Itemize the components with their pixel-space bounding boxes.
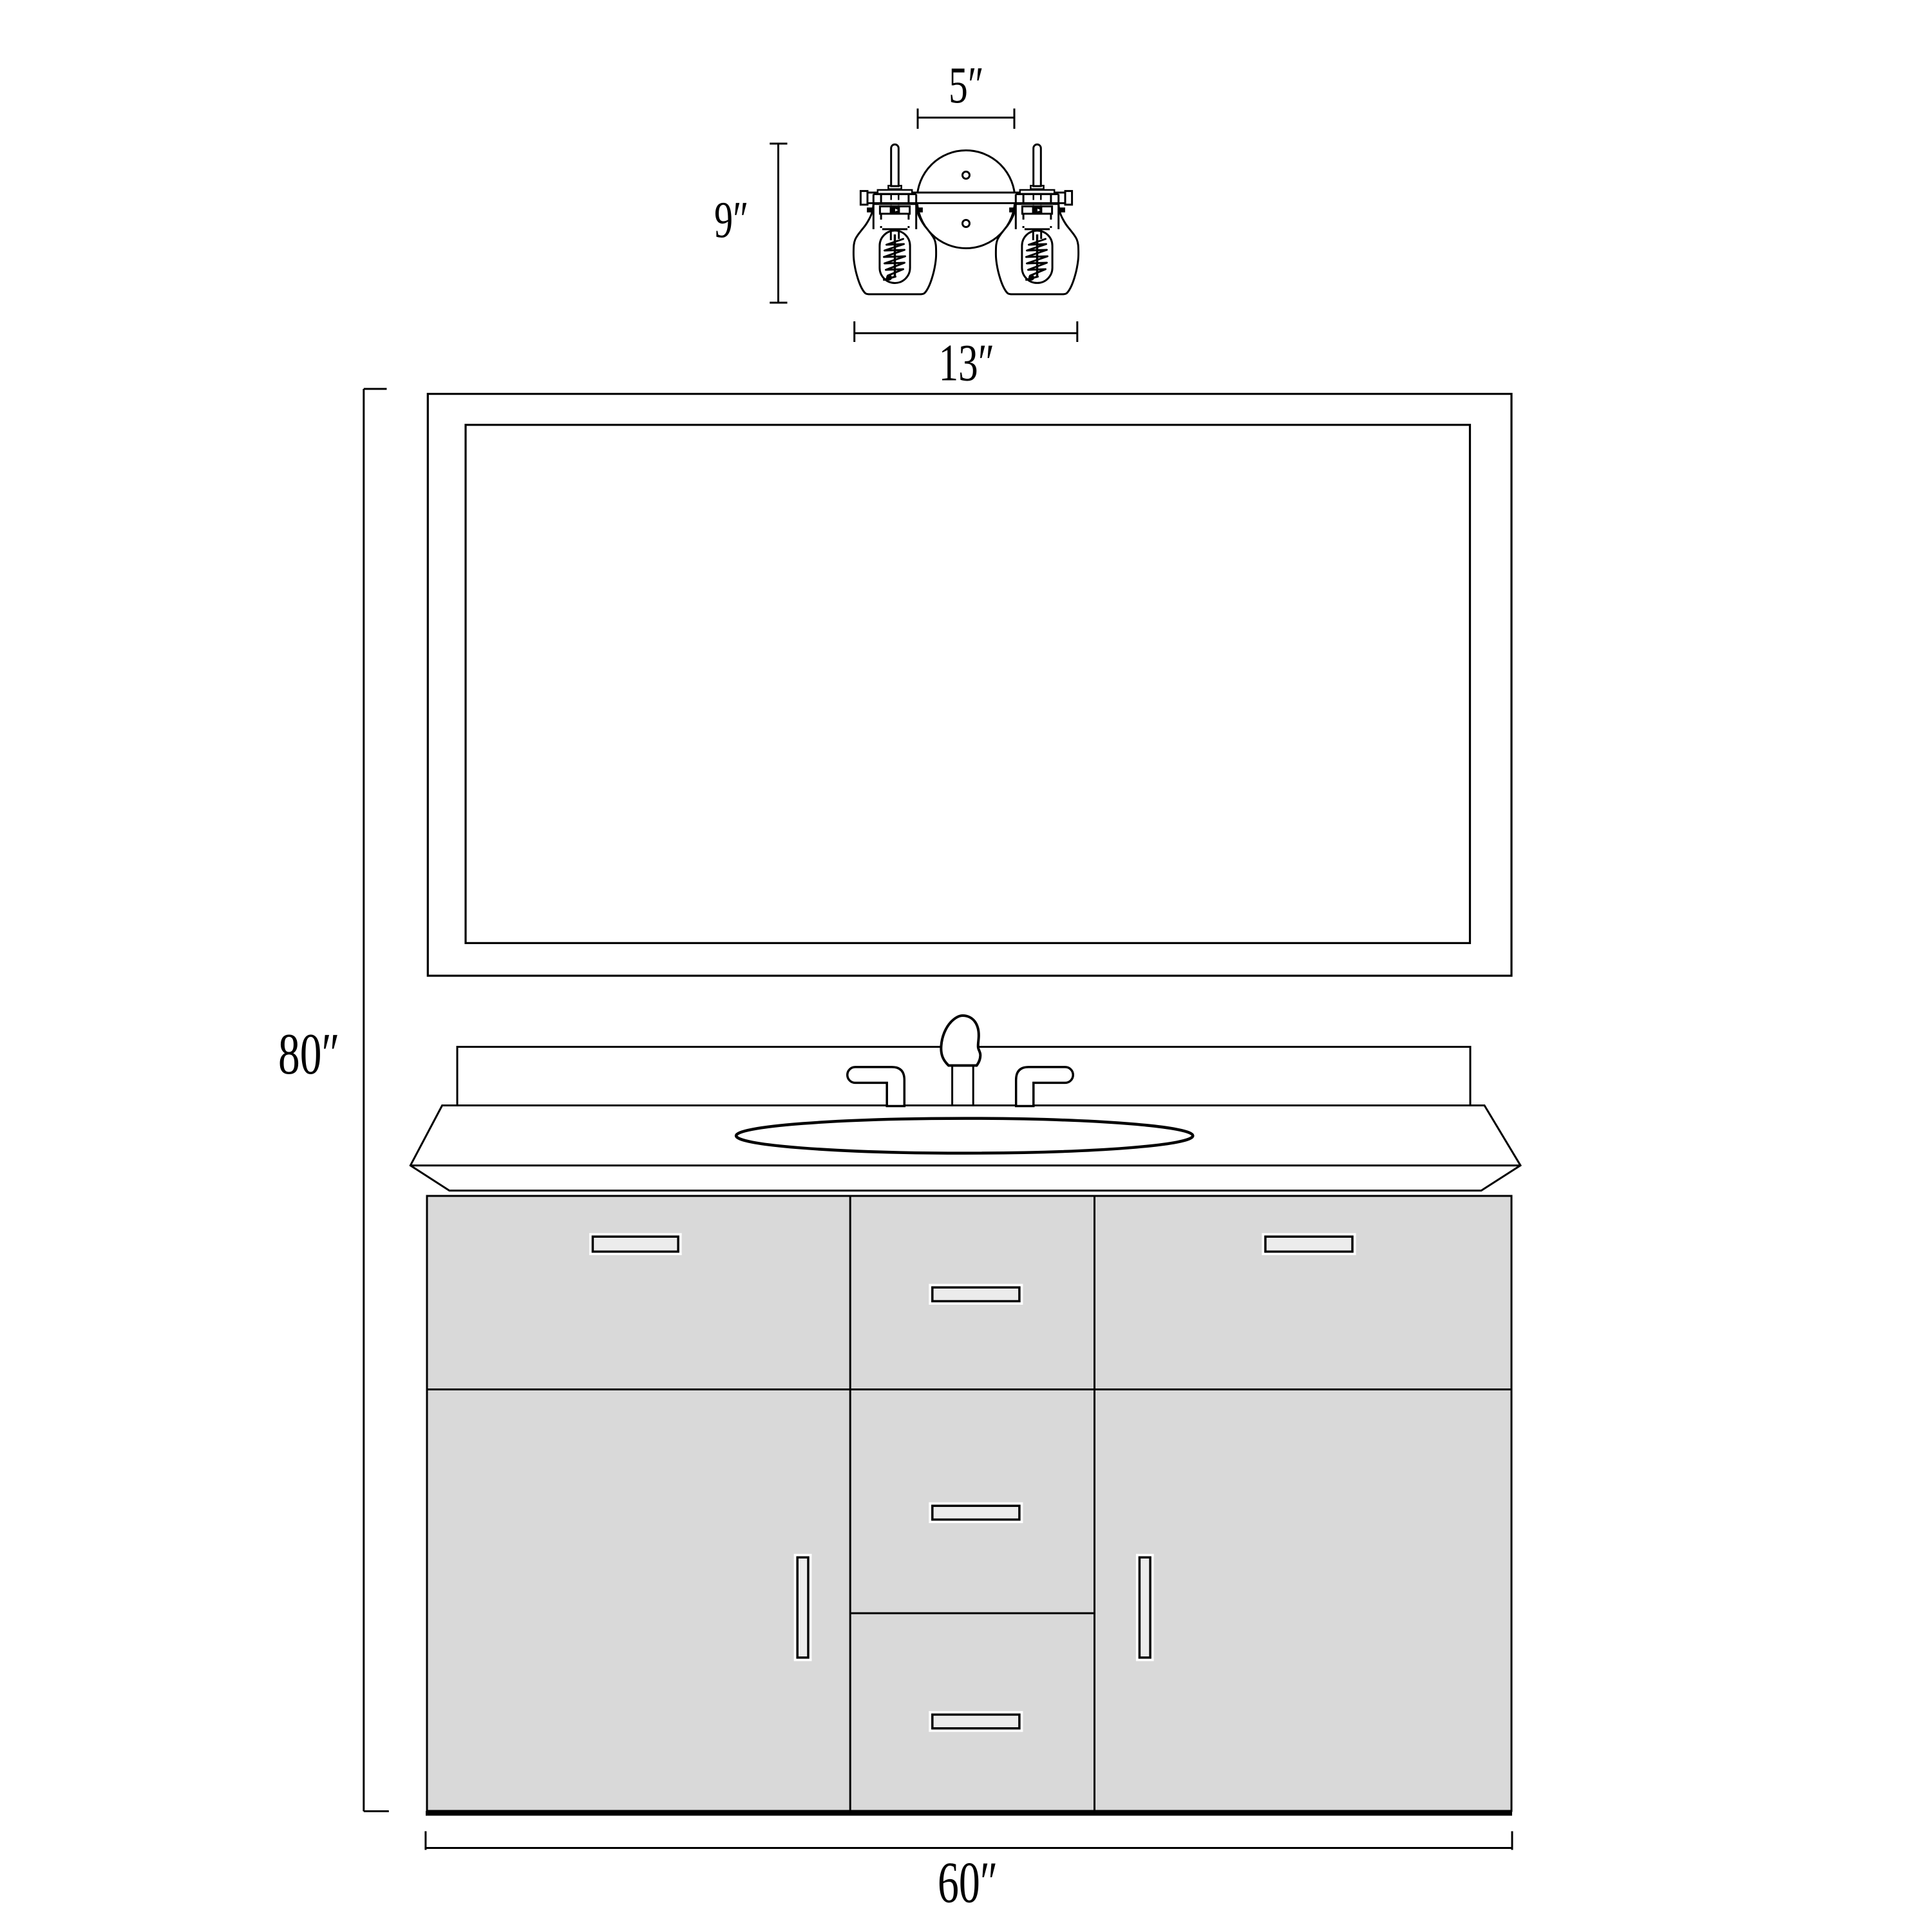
svg-text:80″: 80″ xyxy=(278,1021,340,1086)
svg-text:60″: 60″ xyxy=(938,1850,998,1915)
svg-text:13″: 13″ xyxy=(939,333,995,392)
svg-text:5″: 5″ xyxy=(949,57,984,114)
svg-text:9″: 9″ xyxy=(714,192,748,249)
